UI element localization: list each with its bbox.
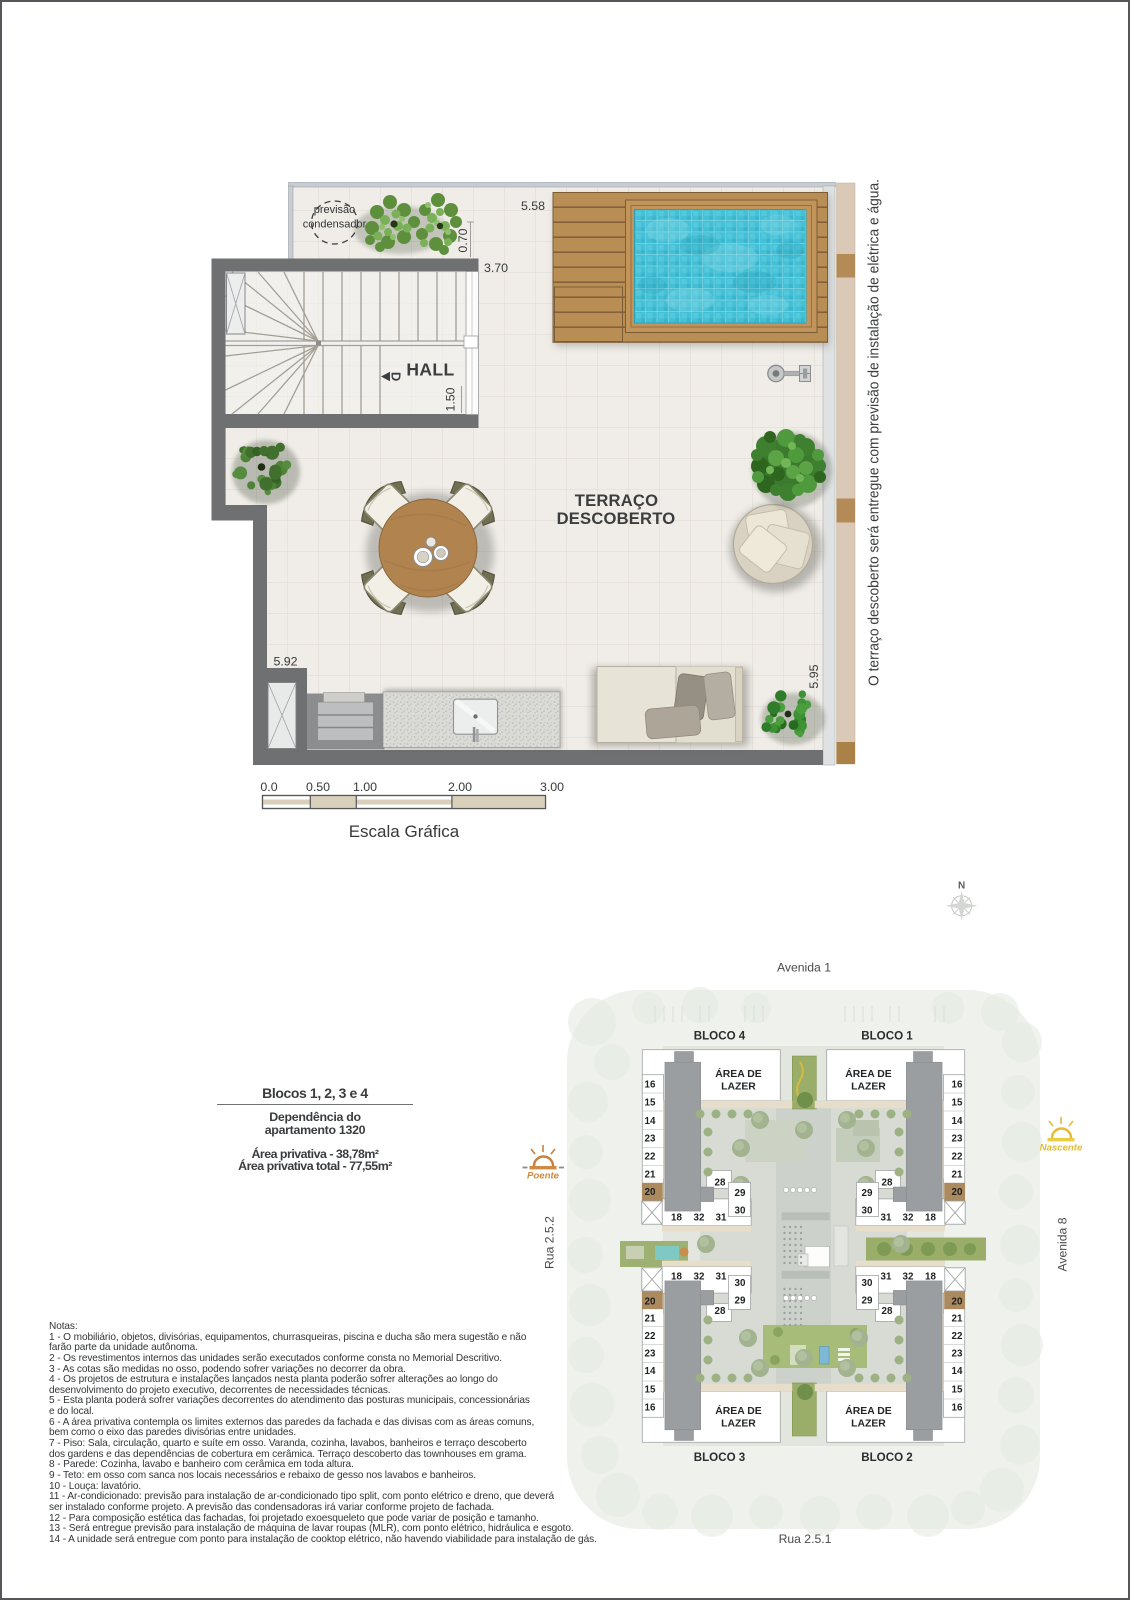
svg-text:28: 28 (882, 1306, 893, 1317)
svg-text:18: 18 (671, 1213, 682, 1224)
svg-text:29: 29 (735, 1188, 746, 1199)
svg-text:16: 16 (952, 1080, 963, 1091)
svg-text:29: 29 (735, 1296, 746, 1307)
svg-text:0.0: 0.0 (260, 780, 277, 794)
svg-text:16: 16 (645, 1080, 656, 1091)
svg-text:31: 31 (881, 1213, 892, 1224)
svg-text:30: 30 (735, 1206, 746, 1217)
svg-text:O terraço descoberto será entr: O terraço descoberto será entregue com p… (867, 179, 883, 686)
svg-text:D: D (389, 372, 404, 381)
svg-text:15: 15 (952, 1098, 963, 1109)
svg-text:21: 21 (952, 1314, 963, 1325)
svg-text:Escala Gráfica: Escala Gráfica (349, 822, 460, 841)
svg-text:0.50: 0.50 (306, 780, 330, 794)
svg-text:ÁREA DE: ÁREA DE (845, 1067, 891, 1080)
svg-text:3.70: 3.70 (484, 261, 508, 275)
svg-text:BLOCO 2: BLOCO 2 (861, 1451, 913, 1464)
svg-text:15: 15 (952, 1385, 963, 1396)
svg-text:28: 28 (715, 1306, 726, 1317)
svg-text:18: 18 (925, 1213, 936, 1224)
svg-text:31: 31 (881, 1272, 892, 1283)
svg-text:22: 22 (952, 1152, 963, 1163)
svg-text:30: 30 (862, 1206, 873, 1217)
svg-text:32: 32 (903, 1213, 914, 1224)
svg-text:TERRAÇO: TERRAÇO (575, 491, 658, 510)
svg-text:3.00: 3.00 (540, 780, 564, 794)
svg-text:31: 31 (716, 1213, 727, 1224)
svg-text:Avenida 8: Avenida 8 (1056, 1217, 1070, 1271)
svg-text:14: 14 (645, 1116, 656, 1127)
svg-text:21: 21 (952, 1170, 963, 1181)
svg-text:ÁREA DE: ÁREA DE (845, 1404, 891, 1417)
svg-text:5.95: 5.95 (807, 664, 821, 688)
svg-text:28: 28 (715, 1178, 726, 1189)
svg-text:Nascente: Nascente (1040, 1143, 1083, 1154)
svg-text:20: 20 (952, 1187, 963, 1198)
svg-text:32: 32 (903, 1272, 914, 1283)
svg-text:20: 20 (952, 1297, 963, 1308)
svg-text:5.92: 5.92 (273, 655, 297, 669)
svg-text:Rua 2.5.2: Rua 2.5.2 (543, 1216, 557, 1269)
svg-text:32: 32 (694, 1213, 705, 1224)
svg-text:5.58: 5.58 (521, 199, 545, 213)
svg-text:BLOCO 1: BLOCO 1 (861, 1030, 913, 1043)
svg-text:31: 31 (716, 1272, 727, 1283)
svg-text:30: 30 (862, 1278, 873, 1289)
svg-text:30: 30 (735, 1278, 746, 1289)
svg-text:28: 28 (882, 1178, 893, 1189)
svg-text:0.70: 0.70 (456, 228, 470, 252)
svg-text:22: 22 (645, 1152, 656, 1163)
svg-text:14: 14 (952, 1116, 963, 1127)
svg-text:18: 18 (671, 1272, 682, 1283)
svg-text:2.00: 2.00 (448, 780, 472, 794)
svg-text:14: 14 (952, 1366, 963, 1377)
svg-text:20: 20 (645, 1187, 656, 1198)
svg-text:LAZER: LAZER (851, 1419, 886, 1430)
svg-text:ÁREA DE: ÁREA DE (715, 1067, 761, 1080)
svg-text:HALL: HALL (406, 360, 454, 380)
svg-text:23: 23 (952, 1349, 963, 1360)
svg-text:condensador: condensador (303, 219, 367, 231)
svg-text:1.00: 1.00 (353, 780, 377, 794)
svg-text:23: 23 (952, 1134, 963, 1145)
svg-text:32: 32 (694, 1272, 705, 1283)
svg-text:16: 16 (952, 1403, 963, 1414)
svg-text:29: 29 (862, 1188, 873, 1199)
svg-text:29: 29 (862, 1296, 873, 1307)
svg-text:23: 23 (645, 1134, 656, 1145)
svg-text:Avenida 1: Avenida 1 (777, 961, 831, 975)
svg-text:15: 15 (645, 1098, 656, 1109)
svg-text:previsão: previsão (314, 204, 356, 216)
svg-text:21: 21 (645, 1170, 656, 1181)
svg-text:18: 18 (925, 1272, 936, 1283)
svg-text:Poente: Poente (527, 1171, 560, 1182)
svg-text:LAZER: LAZER (721, 1082, 756, 1093)
svg-text:1.50: 1.50 (444, 387, 458, 411)
svg-text:22: 22 (952, 1331, 963, 1342)
svg-text:20: 20 (645, 1297, 656, 1308)
svg-text:BLOCO 4: BLOCO 4 (694, 1030, 746, 1043)
svg-text:LAZER: LAZER (851, 1082, 886, 1093)
svg-text:DESCOBERTO: DESCOBERTO (557, 509, 676, 528)
